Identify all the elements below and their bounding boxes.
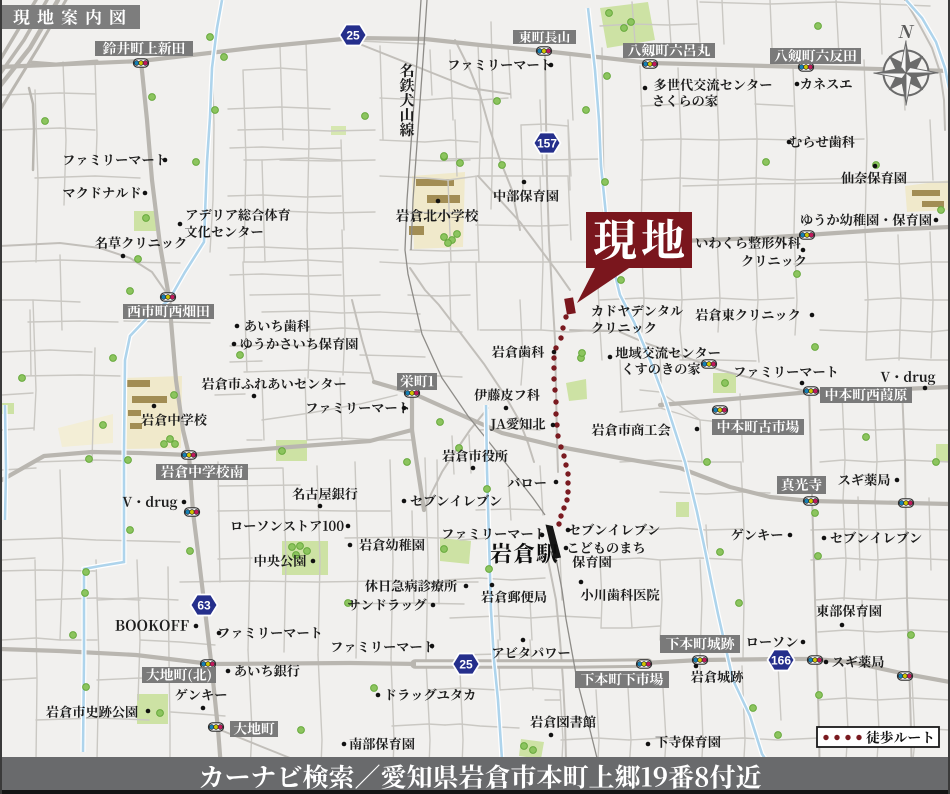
svg-text:157: 157	[537, 136, 557, 150]
svg-text:25: 25	[346, 28, 360, 42]
svg-text:25: 25	[459, 657, 473, 671]
svg-text:166: 166	[771, 653, 791, 667]
svg-text:63: 63	[197, 598, 211, 612]
